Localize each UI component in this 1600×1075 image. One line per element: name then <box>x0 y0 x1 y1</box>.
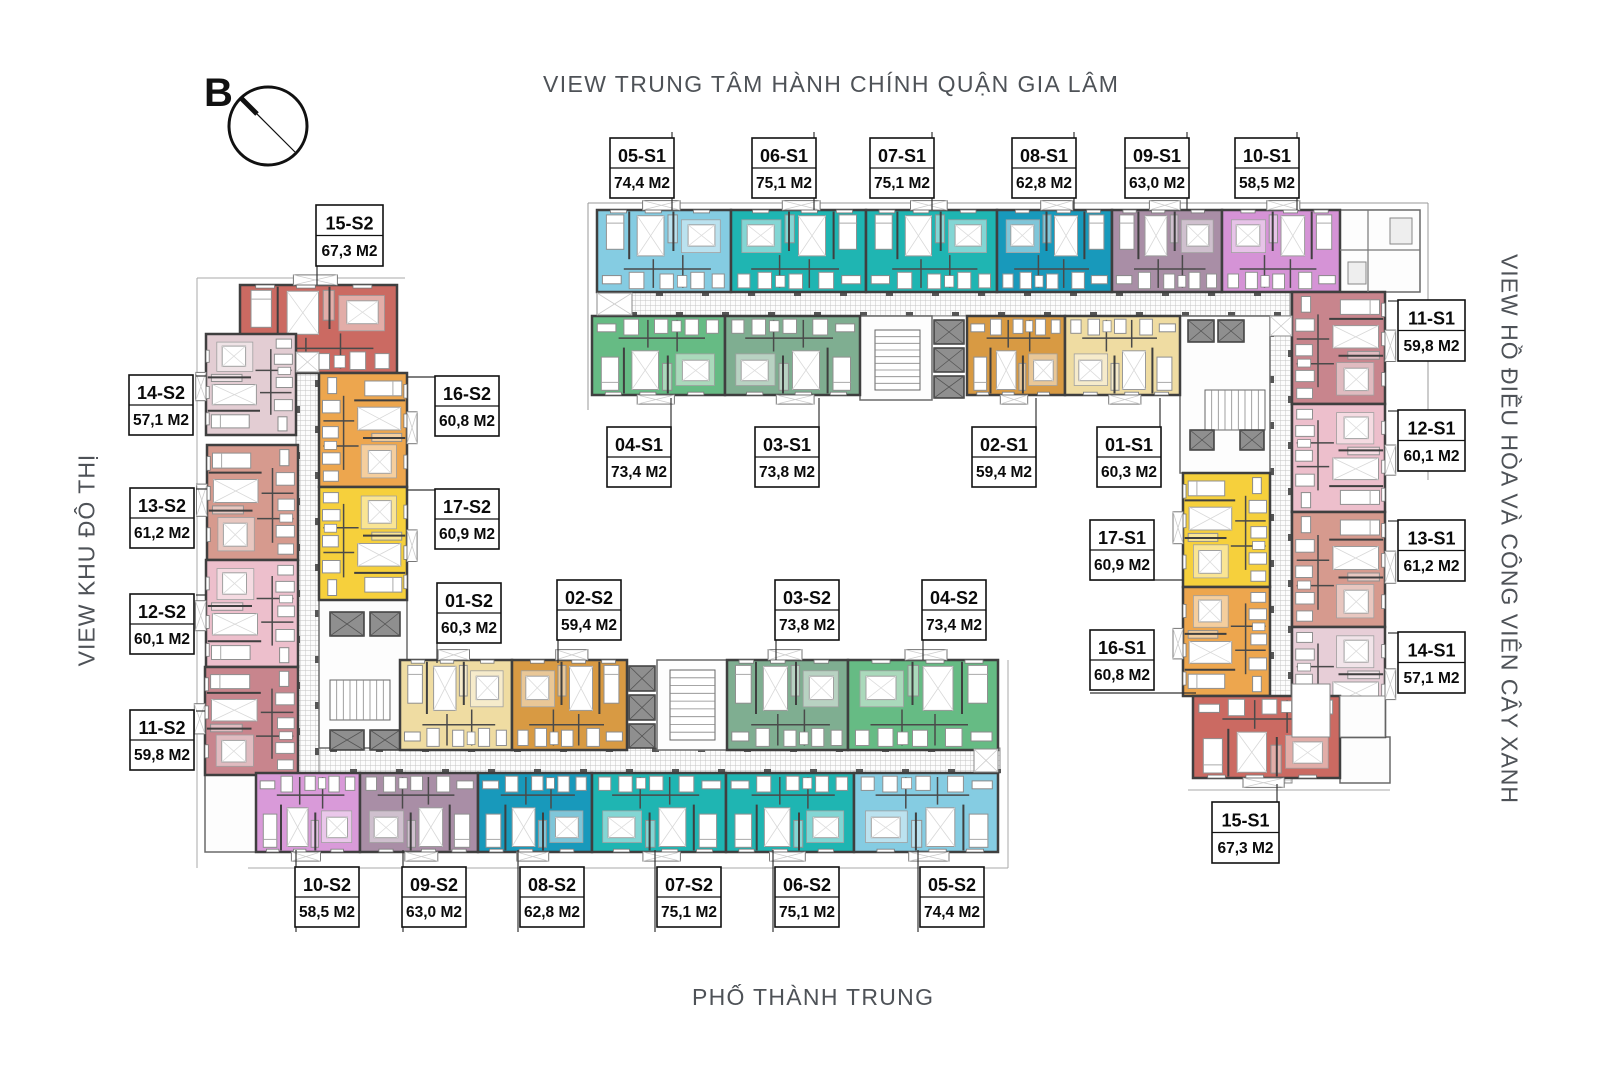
svg-text:13-S1: 13-S1 <box>1407 528 1455 548</box>
svg-text:60,3 M2: 60,3 M2 <box>1101 464 1157 481</box>
svg-text:14-S2: 14-S2 <box>137 383 185 403</box>
svg-text:58,5 M2: 58,5 M2 <box>299 904 355 921</box>
svg-text:57,1 M2: 57,1 M2 <box>133 412 189 429</box>
svg-text:61,2 M2: 61,2 M2 <box>134 525 190 542</box>
svg-text:09-S2: 09-S2 <box>410 875 458 895</box>
svg-text:05-S1: 05-S1 <box>618 146 666 166</box>
svg-text:05-S2: 05-S2 <box>928 875 976 895</box>
svg-text:16-S2: 16-S2 <box>443 384 491 404</box>
svg-text:06-S1: 06-S1 <box>760 146 808 166</box>
svg-text:60,1 M2: 60,1 M2 <box>1403 448 1459 465</box>
svg-text:09-S1: 09-S1 <box>1133 146 1181 166</box>
svg-text:02-S2: 02-S2 <box>565 588 613 608</box>
svg-text:13-S2: 13-S2 <box>138 496 186 516</box>
svg-text:17-S2: 17-S2 <box>443 497 491 517</box>
svg-text:73,4 M2: 73,4 M2 <box>926 617 982 634</box>
svg-text:03-S2: 03-S2 <box>783 588 831 608</box>
svg-text:63,0 M2: 63,0 M2 <box>406 904 462 921</box>
svg-text:62,8 M2: 62,8 M2 <box>524 904 580 921</box>
svg-text:07-S1: 07-S1 <box>878 146 926 166</box>
svg-text:59,4 M2: 59,4 M2 <box>976 464 1032 481</box>
svg-text:62,8 M2: 62,8 M2 <box>1016 175 1072 192</box>
svg-text:61,2 M2: 61,2 M2 <box>1403 558 1459 575</box>
svg-text:59,8 M2: 59,8 M2 <box>134 747 190 764</box>
svg-text:74,4 M2: 74,4 M2 <box>924 904 980 921</box>
svg-text:10-S2: 10-S2 <box>303 875 351 895</box>
svg-text:08-S1: 08-S1 <box>1020 146 1068 166</box>
svg-text:60,9 M2: 60,9 M2 <box>1094 557 1150 574</box>
svg-text:02-S1: 02-S1 <box>980 435 1028 455</box>
svg-text:73,8 M2: 73,8 M2 <box>759 464 815 481</box>
svg-text:11-S2: 11-S2 <box>138 718 185 738</box>
svg-text:08-S2: 08-S2 <box>528 875 576 895</box>
svg-text:75,1 M2: 75,1 M2 <box>779 904 835 921</box>
svg-text:58,5 M2: 58,5 M2 <box>1239 175 1295 192</box>
svg-text:74,4 M2: 74,4 M2 <box>614 175 670 192</box>
svg-text:73,8 M2: 73,8 M2 <box>779 617 835 634</box>
svg-text:59,8 M2: 59,8 M2 <box>1403 338 1459 355</box>
svg-text:60,9 M2: 60,9 M2 <box>439 526 495 543</box>
svg-text:75,1 M2: 75,1 M2 <box>756 175 812 192</box>
svg-text:57,1 M2: 57,1 M2 <box>1403 670 1459 687</box>
svg-text:60,8 M2: 60,8 M2 <box>439 413 495 430</box>
svg-text:01-S1: 01-S1 <box>1105 435 1153 455</box>
svg-text:60,8 M2: 60,8 M2 <box>1094 667 1150 684</box>
svg-text:60,1 M2: 60,1 M2 <box>134 631 190 648</box>
svg-text:03-S1: 03-S1 <box>763 435 811 455</box>
svg-text:59,4 M2: 59,4 M2 <box>561 617 617 634</box>
svg-text:B: B <box>204 71 233 115</box>
svg-text:60,3 M2: 60,3 M2 <box>441 620 497 637</box>
svg-text:04-S2: 04-S2 <box>930 588 978 608</box>
svg-text:73,4 M2: 73,4 M2 <box>611 464 667 481</box>
svg-text:75,1 M2: 75,1 M2 <box>661 904 717 921</box>
svg-text:12-S2: 12-S2 <box>138 602 186 622</box>
svg-text:14-S1: 14-S1 <box>1407 640 1455 660</box>
svg-text:63,0 M2: 63,0 M2 <box>1129 175 1185 192</box>
svg-text:10-S1: 10-S1 <box>1243 146 1291 166</box>
svg-text:16-S1: 16-S1 <box>1098 638 1146 658</box>
svg-text:15-S2: 15-S2 <box>325 213 373 233</box>
svg-text:75,1 M2: 75,1 M2 <box>874 175 930 192</box>
svg-text:67,3 M2: 67,3 M2 <box>1217 840 1273 857</box>
svg-text:17-S1: 17-S1 <box>1098 528 1146 548</box>
svg-text:01-S2: 01-S2 <box>445 591 493 611</box>
svg-text:07-S2: 07-S2 <box>665 875 713 895</box>
svg-text:67,3 M2: 67,3 M2 <box>321 243 377 260</box>
svg-text:06-S2: 06-S2 <box>783 875 831 895</box>
svg-text:12-S1: 12-S1 <box>1407 418 1455 438</box>
svg-text:11-S1: 11-S1 <box>1408 308 1455 328</box>
svg-text:15-S1: 15-S1 <box>1221 810 1269 830</box>
svg-text:04-S1: 04-S1 <box>615 435 663 455</box>
